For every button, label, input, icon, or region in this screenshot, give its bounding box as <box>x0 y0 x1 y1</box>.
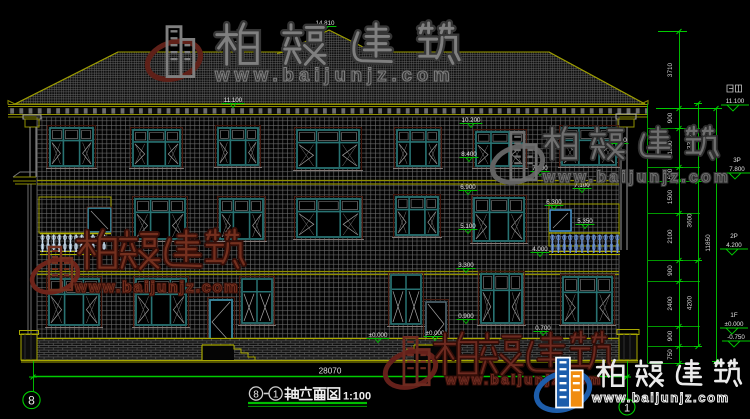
svg-text:8: 8 <box>28 394 35 408</box>
svg-text:3P: 3P <box>733 157 741 164</box>
svg-text:4.200: 4.200 <box>726 242 742 249</box>
svg-text:0.900: 0.900 <box>458 313 474 320</box>
svg-text:11850: 11850 <box>705 234 712 252</box>
svg-text:±0.000: ±0.000 <box>426 330 445 337</box>
svg-text:28070: 28070 <box>319 367 342 376</box>
svg-text:11.100: 11.100 <box>726 98 745 105</box>
svg-text:www.baijunjz.com: www.baijunjz.com <box>591 390 730 405</box>
svg-text:0.700: 0.700 <box>535 325 551 332</box>
svg-text:8: 8 <box>253 390 259 401</box>
svg-text:2100: 2100 <box>667 229 674 244</box>
svg-text:4200: 4200 <box>687 295 694 310</box>
svg-text:10.200: 10.200 <box>462 117 481 124</box>
svg-text:-0.750: -0.750 <box>727 334 745 341</box>
svg-text:www.baijunjz.com: www.baijunjz.com <box>74 279 240 296</box>
svg-text:900: 900 <box>667 265 674 276</box>
svg-text:1: 1 <box>273 390 279 401</box>
svg-text:900: 900 <box>667 330 674 341</box>
svg-text:3600: 3600 <box>687 213 694 228</box>
svg-text:5.350: 5.350 <box>577 218 593 225</box>
svg-text:www.baijunjz.com: www.baijunjz.com <box>214 64 455 85</box>
svg-text:7.800: 7.800 <box>729 166 745 173</box>
svg-text:1500: 1500 <box>667 189 674 204</box>
svg-text:2400: 2400 <box>667 296 674 311</box>
svg-text:2P: 2P <box>730 233 738 240</box>
svg-text:6.300: 6.300 <box>546 199 562 206</box>
svg-text:6.900: 6.900 <box>460 184 476 191</box>
svg-text:3710: 3710 <box>667 62 674 77</box>
svg-text:5.100: 5.100 <box>460 223 476 230</box>
svg-text:11.100: 11.100 <box>224 97 243 104</box>
svg-text:1F: 1F <box>730 312 737 319</box>
svg-text:±0.000: ±0.000 <box>725 321 744 328</box>
svg-text:www.baijunjz.com: www.baijunjz.com <box>542 169 731 186</box>
svg-text:900: 900 <box>667 112 674 123</box>
svg-text:1:100: 1:100 <box>343 391 371 403</box>
svg-text:750: 750 <box>667 349 674 360</box>
svg-text:±0.000: ±0.000 <box>369 332 388 339</box>
svg-text:8.400: 8.400 <box>461 151 477 158</box>
svg-text:4.000: 4.000 <box>532 246 548 253</box>
svg-text:3.300: 3.300 <box>458 262 474 269</box>
